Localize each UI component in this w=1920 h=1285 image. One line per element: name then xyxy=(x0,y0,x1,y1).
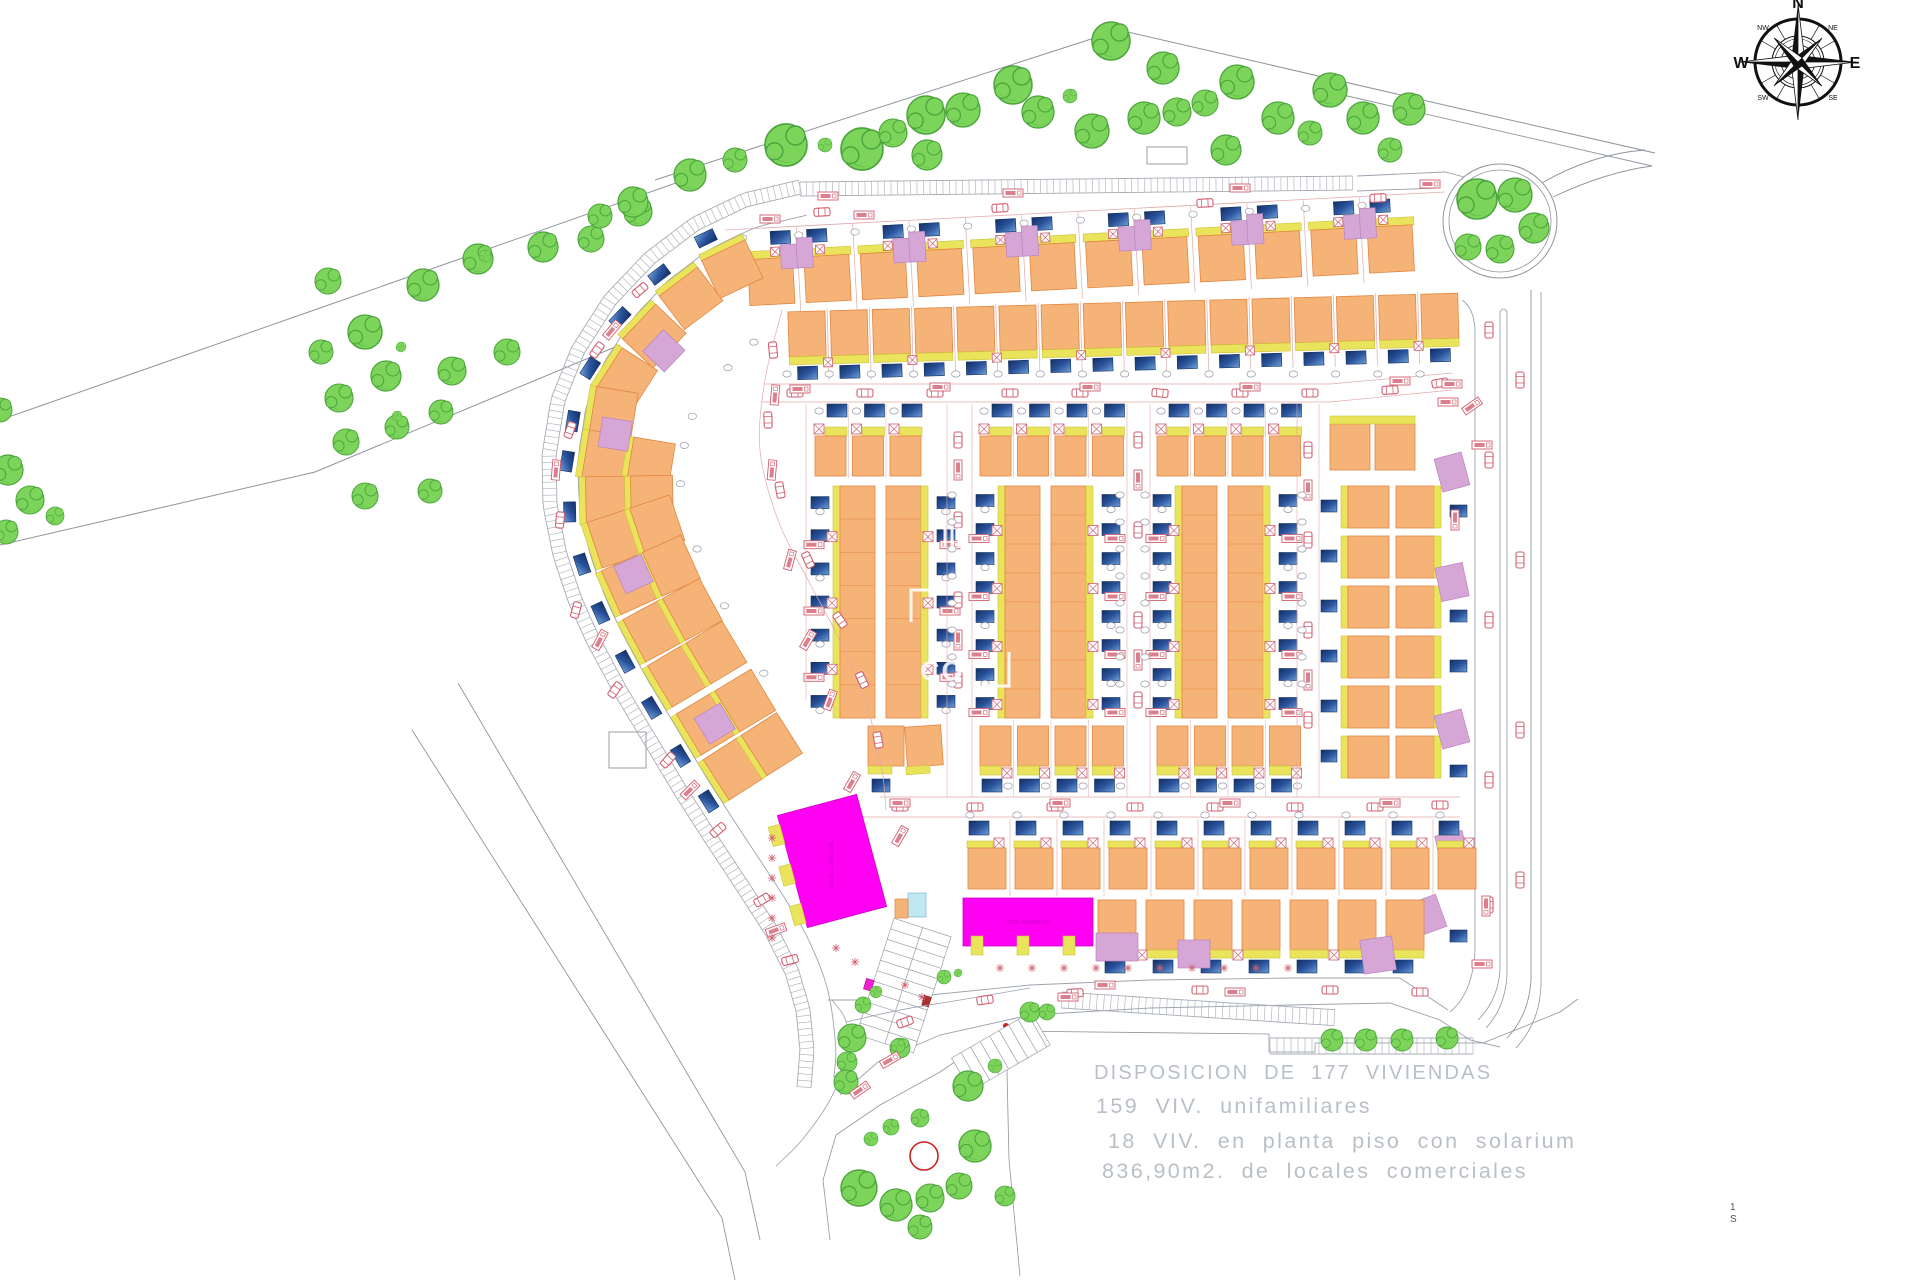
svg-text:S: S xyxy=(1730,1214,1737,1225)
svg-text:LOCAL COMERCIAL: LOCAL COMERCIAL xyxy=(1004,920,1052,926)
svg-text:CO: CO xyxy=(920,656,965,686)
svg-text:NE: NE xyxy=(1828,25,1838,32)
svg-text:N: N xyxy=(1792,0,1804,12)
svg-text:SW: SW xyxy=(1757,95,1769,102)
svg-text:159 VIV. unifamiliares: 159 VIV. unifamiliares xyxy=(1096,1094,1372,1118)
svg-text:DISPOSICION DE 177 VIVIENDAS: DISPOSICION DE 177 VIVIENDAS xyxy=(1094,1062,1492,1084)
svg-text:W: W xyxy=(1733,55,1749,72)
svg-text:836,90m2. de locales comercial: 836,90m2. de locales comerciales xyxy=(1102,1159,1528,1183)
svg-text:18 VIV. en planta piso con sol: 18 VIV. en planta piso con solarium xyxy=(1108,1129,1576,1153)
svg-text:SE: SE xyxy=(1828,95,1838,102)
svg-text:NW: NW xyxy=(1757,25,1769,32)
svg-text:1: 1 xyxy=(1730,1202,1736,1213)
svg-text:E: E xyxy=(1850,55,1861,72)
svg-text:LOCAL COMERCIAL: LOCAL COMERCIAL xyxy=(829,840,835,888)
